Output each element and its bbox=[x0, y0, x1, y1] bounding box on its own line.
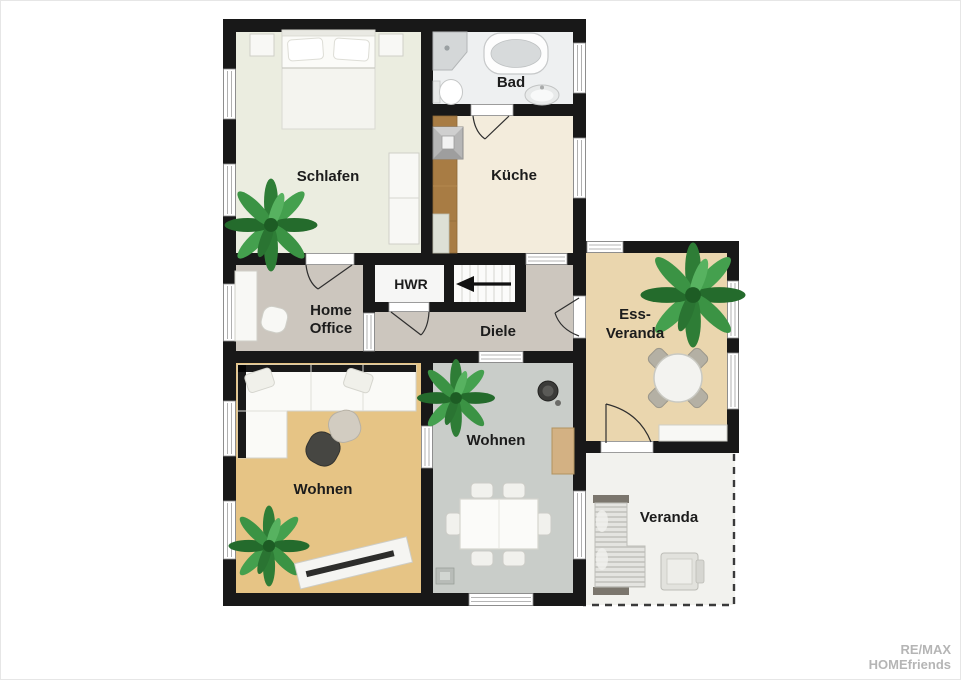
window bbox=[526, 254, 567, 265]
window bbox=[224, 501, 236, 559]
watermark-line2: HOMEfriends bbox=[869, 657, 951, 672]
floor-vent bbox=[436, 568, 454, 584]
room-label-kueche: Küche bbox=[491, 167, 537, 184]
dining-chair bbox=[471, 551, 493, 566]
room-label-home-office-1: Home bbox=[310, 302, 352, 319]
window bbox=[469, 594, 533, 606]
wardrobe bbox=[389, 153, 419, 244]
dining-chair bbox=[503, 551, 525, 566]
staircase bbox=[454, 265, 515, 302]
dining-chair bbox=[446, 513, 461, 535]
room-label-diele: Diele bbox=[480, 323, 516, 340]
potted-plant bbox=[225, 179, 318, 272]
room-label-schlafen: Schlafen bbox=[297, 168, 360, 185]
window bbox=[224, 164, 236, 216]
wall bbox=[363, 302, 526, 312]
room-label-home-office-2: Office bbox=[310, 320, 353, 337]
toilet bbox=[433, 80, 463, 105]
window bbox=[574, 491, 586, 559]
potted-plant bbox=[417, 359, 495, 437]
double-bed bbox=[282, 30, 375, 129]
bathroom-sink bbox=[525, 85, 559, 105]
window bbox=[224, 284, 236, 341]
floorplan-drawing: Schlafen Bad Küche Home Office HWR Diele… bbox=[1, 1, 961, 680]
window bbox=[224, 401, 236, 456]
window bbox=[479, 352, 523, 363]
room-label-wohnen-left: Wohnen bbox=[294, 481, 353, 498]
dining-chair bbox=[503, 483, 525, 498]
room-label-hwr: HWR bbox=[394, 276, 427, 292]
watermark-line1: RE/MAX bbox=[900, 642, 951, 657]
window bbox=[587, 242, 623, 253]
passage-opening bbox=[422, 426, 433, 468]
passage-opening bbox=[364, 313, 375, 351]
dining-chair bbox=[471, 483, 493, 498]
sideboard-wood bbox=[552, 428, 574, 474]
window bbox=[574, 43, 586, 93]
wall bbox=[223, 19, 586, 32]
wall bbox=[421, 19, 433, 265]
nightstand bbox=[250, 34, 274, 56]
wall bbox=[421, 351, 433, 606]
room-label-wohnen-center: Wohnen bbox=[467, 432, 526, 449]
window bbox=[224, 69, 236, 119]
watermark: RE/MAX HOMEfriends bbox=[869, 642, 952, 672]
room-label-ess-veranda-1: Ess- bbox=[619, 306, 651, 323]
room-label-ess-veranda-2: Veranda bbox=[606, 325, 665, 342]
round-table bbox=[654, 354, 702, 402]
kitchen-cabinet bbox=[433, 214, 449, 253]
desk bbox=[235, 271, 257, 341]
bathtub bbox=[484, 33, 548, 74]
wall bbox=[573, 441, 739, 453]
window bbox=[728, 353, 739, 409]
bench bbox=[659, 425, 727, 441]
wall bbox=[223, 351, 586, 363]
room-label-bad: Bad bbox=[497, 74, 525, 91]
wall bbox=[727, 241, 739, 453]
floorplan-page: Schlafen Bad Küche Home Office HWR Diele… bbox=[0, 0, 961, 680]
nightstand bbox=[379, 34, 403, 56]
outdoor-armchair bbox=[661, 553, 704, 590]
stove-hood bbox=[433, 127, 463, 159]
room-label-veranda: Veranda bbox=[640, 509, 699, 526]
window bbox=[574, 138, 586, 198]
